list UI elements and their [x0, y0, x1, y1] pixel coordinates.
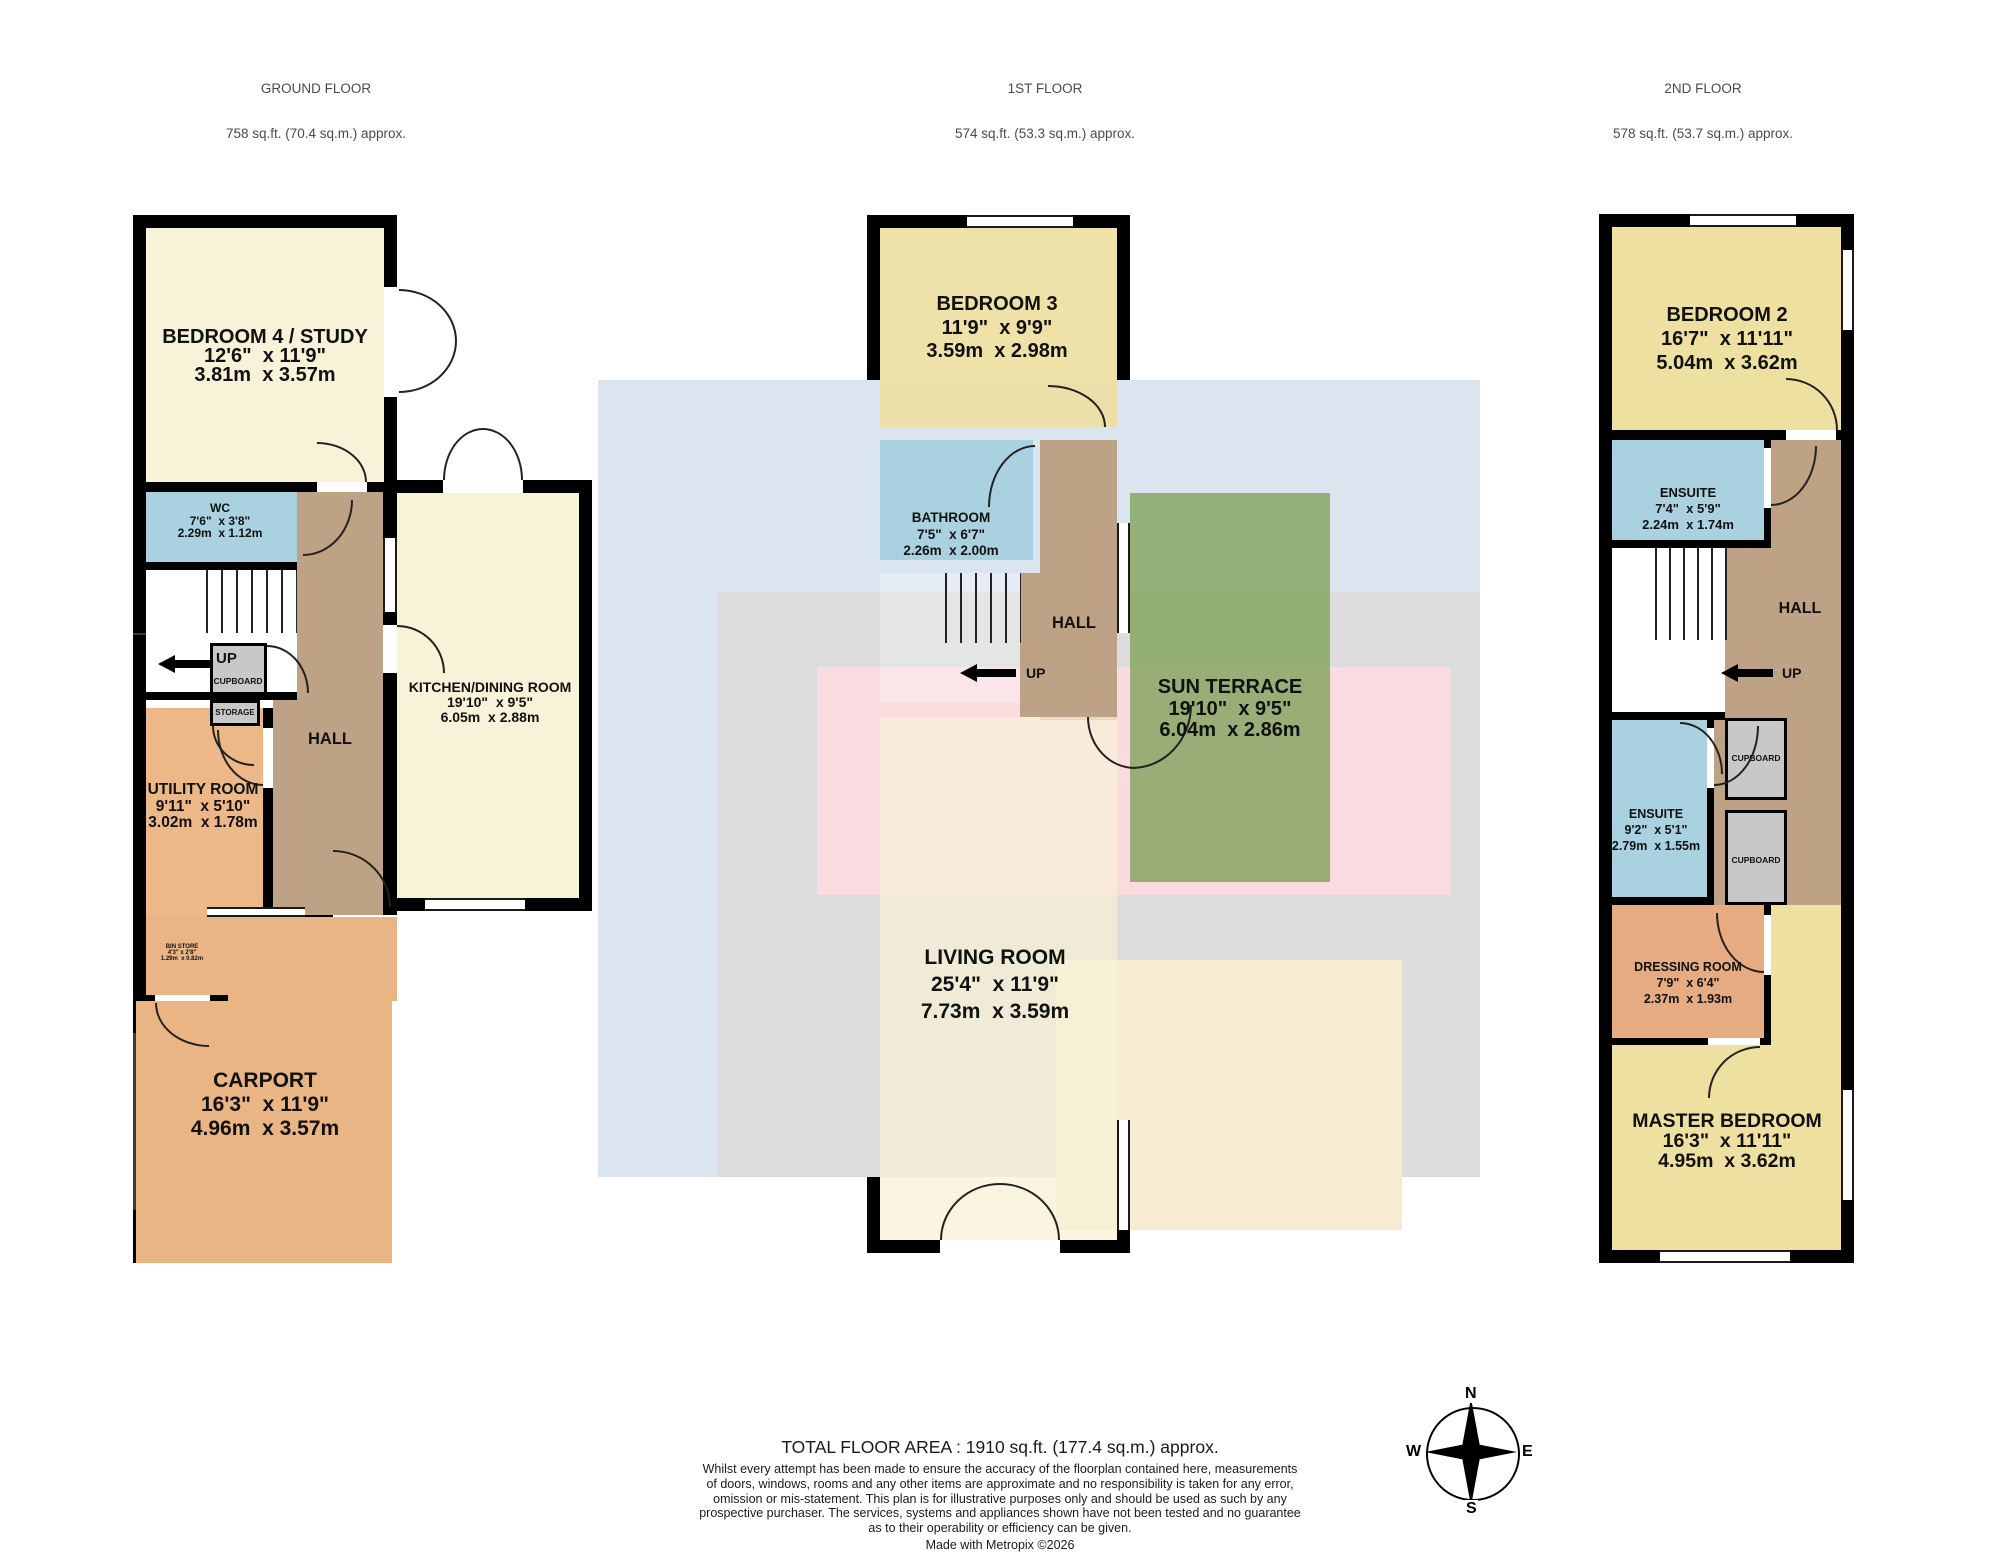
- room-dim-m: 4.95m x 3.62m: [1632, 1151, 1822, 1171]
- wall: [133, 215, 397, 228]
- second-floor-area: 578 sq.ft. (53.7 sq.m.) approx.: [1613, 126, 1793, 141]
- room-master-ext: [1771, 905, 1841, 1045]
- wall: [1599, 214, 1612, 1263]
- wall: [1599, 214, 1690, 227]
- up-arrow-icon: [960, 664, 977, 682]
- label-bedroom3: BEDROOM 3 11'9" x 9'9" 3.59m x 2.98m: [926, 293, 1067, 364]
- room-name: CUPBOARD: [1731, 855, 1780, 865]
- label-cupboard1: CUPBOARD: [1731, 753, 1780, 763]
- room-dim-ft: 11'9" x 9'9": [926, 317, 1067, 341]
- room-dim-m: 6.05m x 2.88m: [409, 710, 572, 725]
- wall: [384, 215, 397, 287]
- room-hall-first-ext: [1020, 573, 1040, 717]
- wall: [1599, 430, 1786, 440]
- wall: [384, 397, 397, 482]
- room-dim-m: 2.26m x 2.00m: [903, 543, 998, 560]
- wall: [1599, 712, 1725, 720]
- room-dim-ft: 25'4" x 11'9": [921, 971, 1069, 998]
- door-arc: [483, 428, 523, 480]
- first-floor-header: 1ST FLOOR 574 sq.ft. (53.3 sq.m.) approx…: [955, 51, 1135, 171]
- wall: [263, 708, 273, 728]
- room-dim-m: 1.29m x 0.82m: [161, 956, 203, 962]
- room-dim-ft: 19'10" x 9'5": [409, 695, 572, 710]
- label-hall-ground: HALL: [308, 730, 352, 749]
- stairs-treads: [1655, 548, 1727, 640]
- door-arc: [443, 428, 483, 480]
- window: [1117, 523, 1130, 633]
- made-with-metropix: Made with Metropix ©2026: [926, 1538, 1075, 1552]
- wall: [383, 492, 397, 538]
- window: [1117, 1120, 1130, 1230]
- label-ensuite1: ENSUITE 7'4" x 5'9" 2.24m x 1.74m: [1642, 485, 1734, 533]
- room-name: HALL: [1052, 614, 1096, 633]
- room-hall-ground-ext: [273, 700, 297, 915]
- label-living-room: LIVING ROOM 25'4" x 11'9" 7.73m x 3.59m: [921, 944, 1069, 1025]
- wall: [367, 482, 397, 492]
- compass-w-label: W: [1405, 1443, 1422, 1461]
- label-master: MASTER BEDROOM 16'3" x 11'11" 4.95m x 3.…: [1632, 1111, 1822, 1171]
- label-kitchen: KITCHEN/DINING ROOM 19'10" x 9'5" 6.05m …: [409, 680, 572, 725]
- room-dim-m: 2.79m x 1.55m: [1612, 838, 1700, 854]
- room-dim-m: 6.04m x 2.86m: [1158, 720, 1302, 742]
- room-dim-m: 3.59m x 2.98m: [926, 340, 1067, 364]
- room-dim-m: 4.96m x 3.57m: [191, 1117, 339, 1141]
- label-bedroom4: BEDROOM 4 / STUDY 12'6" x 11'9" 3.81m x …: [162, 328, 368, 385]
- wall: [133, 562, 303, 570]
- label-hall-first: HALL: [1052, 614, 1096, 633]
- up-arrow-icon: [976, 669, 1016, 677]
- total-floor-area: TOTAL FLOOR AREA : 1910 sq.ft. (177.4 sq…: [781, 1437, 1218, 1458]
- room-name: CUPBOARD: [213, 676, 262, 686]
- wall: [263, 788, 273, 915]
- window: [207, 907, 305, 917]
- window: [1690, 214, 1796, 227]
- stairs-treads: [206, 570, 297, 633]
- room-hall-first: [1040, 440, 1117, 720]
- label-bin-store: BIN STORE 4'3" x 2'8" 1.29m x 0.82m: [161, 944, 203, 962]
- up-arrow-icon: [158, 655, 175, 673]
- first-floor-title: 1ST FLOOR: [955, 81, 1135, 96]
- second-floor-title: 2ND FLOOR: [1613, 81, 1793, 96]
- room-name: CARPORT: [191, 1069, 339, 1093]
- room-dim-ft: 16'3" x 11'11": [1632, 1131, 1822, 1151]
- up-label: UP: [1782, 665, 1801, 681]
- up-label: UP: [1026, 665, 1045, 681]
- first-floor-area: 574 sq.ft. (53.3 sq.m.) approx.: [955, 126, 1135, 141]
- room-dim-m: 3.81m x 3.57m: [162, 366, 368, 385]
- room-dim-ft: 16'7" x 11'11": [1656, 327, 1797, 351]
- compass-n-label: N: [1464, 1385, 1478, 1403]
- window: [1841, 250, 1854, 330]
- room-dim-m: 5.04m x 3.62m: [1656, 351, 1797, 375]
- room-name: ENSUITE: [1642, 485, 1734, 501]
- stairs-treads: [945, 573, 1021, 643]
- label-dressing: DRESSING ROOM 7'9" x 6'4" 2.37m x 1.93m: [1634, 959, 1742, 1007]
- room-name: STORAGE: [215, 708, 254, 717]
- room-name: LIVING ROOM: [921, 944, 1069, 971]
- compass-e-label: E: [1521, 1443, 1534, 1461]
- room-dim-ft: 9'11" x 5'10": [148, 799, 259, 816]
- room-dim-ft: 9'2" x 5'1": [1612, 822, 1700, 838]
- room-name: BEDROOM 3: [926, 293, 1067, 317]
- room-dim-ft: 7'4" x 5'9": [1642, 501, 1734, 517]
- room-dim-m: 2.24m x 1.74m: [1642, 517, 1734, 533]
- ground-floor-area: 758 sq.ft. (70.4 sq.m.) approx.: [226, 126, 406, 141]
- room-dim-m: 2.37m x 1.93m: [1634, 991, 1742, 1007]
- label-utility: UTILITY ROOM 9'11" x 5'10" 3.02m x 1.78m: [148, 782, 259, 832]
- room-dim-m: 3.02m x 1.78m: [148, 815, 259, 832]
- up-label: UP: [216, 650, 237, 667]
- wall: [1599, 540, 1771, 548]
- room-dim-m: 7.73m x 3.59m: [921, 998, 1069, 1025]
- wall: [1790, 1250, 1854, 1263]
- disclaimer-line: as to their operability or efficiency ca…: [699, 1521, 1301, 1536]
- label-bedroom2: BEDROOM 2 16'7" x 11'11" 5.04m x 3.62m: [1656, 303, 1797, 375]
- disclaimer-line: omission or mis-statement. This plan is …: [699, 1492, 1301, 1507]
- label-cupboard-ground: CUPBOARD: [213, 676, 262, 686]
- room-name: SUN TERRACE: [1158, 677, 1302, 699]
- disclaimer-line: Whilst every attempt has been made to en…: [699, 1462, 1301, 1477]
- wall: [1060, 1240, 1130, 1253]
- wall: [579, 480, 592, 911]
- wall: [397, 480, 443, 493]
- room-name: DRESSING ROOM: [1634, 959, 1742, 975]
- compass-s-label: S: [1465, 1500, 1478, 1518]
- wall: [1841, 330, 1854, 1090]
- window: [1660, 1250, 1790, 1263]
- label-hall-second: HALL: [1779, 600, 1822, 618]
- room-dim-ft: 19'10" x 9'5": [1158, 699, 1302, 721]
- room-name: BATHROOM: [903, 510, 998, 527]
- up-arrow-icon: [1721, 664, 1738, 682]
- window: [425, 898, 525, 911]
- room-name: HALL: [308, 730, 352, 749]
- room-name: HALL: [1779, 600, 1822, 618]
- label-bathroom: BATHROOM 7'5" x 6'7" 2.26m x 2.00m: [903, 510, 998, 560]
- room-name: ENSUITE: [1612, 806, 1700, 822]
- carport-approach: [228, 917, 397, 1001]
- window: [383, 538, 397, 612]
- up-arrow-icon: [174, 660, 212, 668]
- compass-east-point-icon: [1471, 1443, 1517, 1461]
- room-dim-ft: 7'5" x 6'7": [903, 527, 998, 544]
- room-name: CUPBOARD: [1731, 753, 1780, 763]
- door-arc: [399, 341, 457, 393]
- wall: [133, 215, 146, 1005]
- room-name: BEDROOM 2: [1656, 303, 1797, 327]
- window: [1841, 1090, 1854, 1200]
- second-floor-header: 2ND FLOOR 578 sq.ft. (53.7 sq.m.) approx…: [1613, 51, 1793, 171]
- room-dim-m: 2.29m x 1.12m: [178, 527, 263, 540]
- label-carport: CARPORT 16'3" x 11'9" 4.96m x 3.57m: [191, 1069, 339, 1141]
- wall: [1836, 430, 1854, 440]
- room-dim-ft: 7'9" x 6'4": [1634, 975, 1742, 991]
- ground-floor-title: GROUND FLOOR: [226, 81, 406, 96]
- door-arc: [399, 289, 457, 341]
- wall: [1707, 788, 1714, 897]
- window: [967, 215, 1073, 228]
- wall: [867, 215, 967, 228]
- wall: [1764, 440, 1771, 448]
- wall: [1599, 1250, 1660, 1263]
- wall: [383, 612, 397, 625]
- up-arrow-icon: [1737, 669, 1773, 677]
- label-wc: WC 7'6" x 3'8" 2.29m x 1.12m: [178, 502, 263, 540]
- wall: [867, 1240, 940, 1253]
- disclaimer-line: prospective purchaser. The services, sys…: [699, 1506, 1301, 1521]
- wall: [1764, 905, 1771, 915]
- wall: [1707, 720, 1714, 728]
- room-name: MASTER BEDROOM: [1632, 1111, 1822, 1131]
- wall: [1764, 975, 1771, 1038]
- room-name: WC: [178, 502, 263, 515]
- room-name: UTILITY ROOM: [148, 782, 259, 799]
- room-dim-ft: 16'3" x 11'9": [191, 1093, 339, 1117]
- disclaimer: Whilst every attempt has been made to en…: [699, 1462, 1301, 1536]
- label-ensuite2: ENSUITE 9'2" x 5'1" 2.79m x 1.55m: [1612, 806, 1700, 854]
- wall: [1841, 214, 1854, 250]
- floorplan-page: GROUND FLOOR 758 sq.ft. (70.4 sq.m.) app…: [0, 0, 2000, 1560]
- wall: [133, 482, 317, 492]
- wall: [383, 673, 397, 915]
- label-sun-terrace: SUN TERRACE 19'10" x 9'5" 6.04m x 2.86m: [1158, 677, 1302, 742]
- label-cupboard2: CUPBOARD: [1731, 855, 1780, 865]
- label-storage-ground: STORAGE: [215, 708, 254, 717]
- room-name: KITCHEN/DINING ROOM: [409, 680, 572, 695]
- wall: [1764, 508, 1771, 540]
- disclaimer-line: of doors, windows, rooms and any other i…: [699, 1477, 1301, 1492]
- compass-west-point-icon: [1425, 1443, 1471, 1461]
- ground-floor-header: GROUND FLOOR 758 sq.ft. (70.4 sq.m.) app…: [226, 51, 406, 171]
